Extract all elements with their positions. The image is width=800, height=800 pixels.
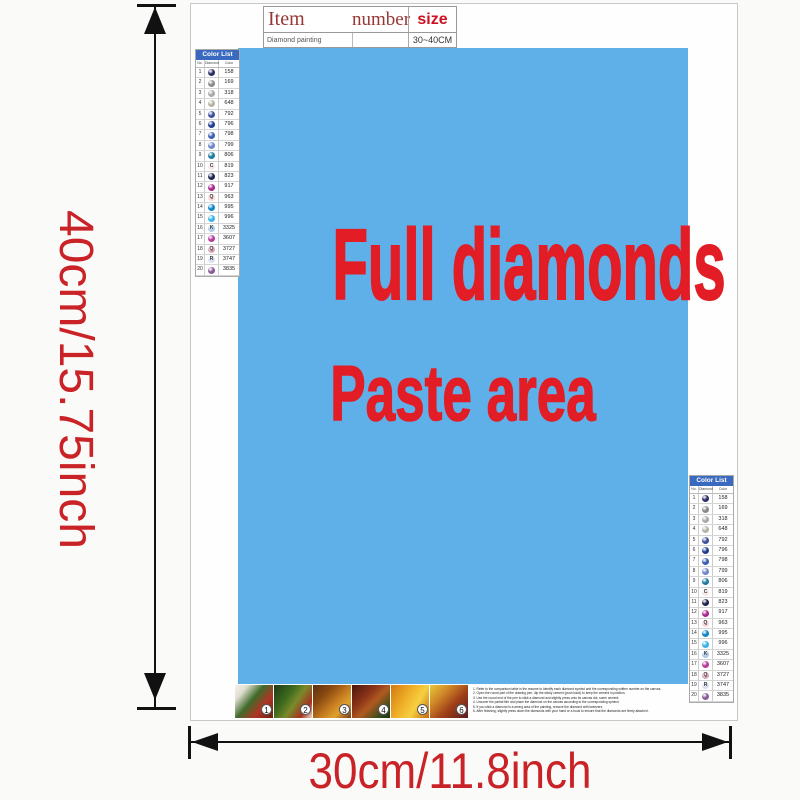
color-list-row: 19 R 3747 — [690, 681, 733, 691]
arrow-down-icon — [144, 673, 166, 700]
diamond-symbol-icon — [702, 568, 709, 575]
diamond-symbol-icon — [208, 132, 215, 139]
color-row-number: 6 — [690, 546, 699, 555]
color-list-row: 17 3607 — [690, 660, 733, 670]
color-list-row: 10 C 819 — [196, 162, 239, 172]
diamond-symbol-icon — [208, 204, 215, 211]
color-code: 823 — [713, 598, 733, 607]
color-code: 648 — [219, 99, 239, 108]
step-thumbnail: 3 — [313, 685, 351, 718]
spec-value-number — [352, 33, 408, 47]
color-list-row: 11 823 — [196, 172, 239, 182]
color-row-number: 19 — [196, 255, 205, 264]
diamond-symbol-cell: Q — [205, 193, 219, 202]
diamond-symbol-icon — [702, 599, 709, 606]
spec-header-item: Item — [264, 8, 352, 31]
step-number-badge: 1 — [261, 704, 272, 715]
color-row-number: 13 — [196, 193, 205, 202]
color-row-number: 5 — [196, 110, 205, 119]
diamond-symbol-cell: R — [205, 255, 219, 264]
color-code: 917 — [219, 182, 239, 191]
color-code: 819 — [713, 588, 733, 597]
diamond-symbol-icon: C — [702, 589, 709, 596]
diamond-symbol-icon — [702, 547, 709, 554]
diamond-symbol-cell — [699, 691, 713, 700]
spec-table: Item number size Diamond painting 30~40C… — [263, 6, 457, 48]
color-list-rows: 1 158 2 169 — [690, 494, 733, 702]
diamond-symbol-cell — [699, 525, 713, 534]
color-list-row: 18 Q 3727 — [690, 671, 733, 681]
diamond-symbol-icon: K — [208, 225, 215, 232]
color-code: 3607 — [219, 234, 239, 243]
color-list-row: 3 318 — [690, 515, 733, 525]
diamond-symbol-cell — [699, 639, 713, 648]
color-row-number: 13 — [690, 619, 699, 628]
color-code: 169 — [219, 78, 239, 87]
color-list-row: 6 796 — [690, 546, 733, 556]
step-number-badge: 5 — [417, 704, 428, 715]
diamond-symbol-cell — [205, 151, 219, 160]
spec-table-row: Diamond painting 30~40CM — [264, 33, 456, 47]
color-code: 796 — [713, 546, 733, 555]
col-no: No. — [196, 60, 205, 67]
color-row-number: 7 — [196, 130, 205, 139]
diamond-symbol-icon — [208, 142, 215, 149]
color-row-number: 7 — [690, 556, 699, 565]
diamond-symbol-cell — [699, 567, 713, 576]
color-list-row: 4 648 — [690, 525, 733, 535]
color-row-number: 16 — [690, 650, 699, 659]
spec-header-number: number — [352, 9, 408, 31]
color-list-row: 20 3835 — [690, 691, 733, 701]
col-color: Color — [713, 486, 733, 493]
diamond-symbol-icon — [702, 558, 709, 565]
color-code: 3325 — [219, 224, 239, 233]
diamond-symbol-cell — [205, 213, 219, 222]
diamond-symbol-icon — [208, 69, 215, 76]
diamond-symbol-icon — [208, 215, 215, 222]
diamond-symbol-icon — [208, 184, 215, 191]
color-row-number: 1 — [690, 494, 699, 503]
diamond-symbol-icon — [208, 152, 215, 159]
diamond-symbol-cell: Q — [699, 619, 713, 628]
color-list-row: 12 917 — [196, 182, 239, 192]
color-list-row: 2 169 — [690, 504, 733, 514]
diamond-symbol-cell: C — [205, 162, 219, 171]
diamond-symbol-icon — [702, 526, 709, 533]
color-row-number: 8 — [196, 141, 205, 150]
color-row-number: 17 — [196, 234, 205, 243]
color-list-row: 15 996 — [196, 213, 239, 223]
height-arrow-bottom-cap — [137, 707, 176, 710]
color-row-number: 5 — [690, 536, 699, 545]
color-code: 648 — [713, 525, 733, 534]
paste-area-title-line2: Paste area — [310, 348, 616, 439]
step-thumbnail: 1 — [235, 685, 273, 718]
diamond-symbol-cell — [699, 660, 713, 669]
color-list-row: 5 792 — [690, 536, 733, 546]
diamond-symbol-icon — [702, 661, 709, 668]
color-row-number: 17 — [690, 660, 699, 669]
color-list-row: 16 K 3325 — [690, 650, 733, 660]
color-list-row: 11 823 — [690, 598, 733, 608]
spec-table-header: Item number size — [264, 7, 456, 33]
color-row-number: 3 — [196, 89, 205, 98]
color-list-row: 1 158 — [690, 494, 733, 504]
diamond-symbol-cell: R — [699, 681, 713, 690]
color-code: 996 — [713, 639, 733, 648]
color-list-row: 20 3835 — [196, 265, 239, 275]
color-code: 796 — [219, 120, 239, 129]
color-row-number: 4 — [690, 525, 699, 534]
diamond-symbol-icon: Q — [702, 672, 709, 679]
col-diamond: Diamond — [699, 486, 713, 493]
color-list-row: 7 798 — [196, 130, 239, 140]
spec-header-size: size — [408, 7, 456, 32]
color-list-row: 2 169 — [196, 78, 239, 88]
diamond-symbol-icon: K — [702, 651, 709, 658]
diamond-symbol-cell — [205, 89, 219, 98]
diamond-symbol-icon — [208, 267, 215, 274]
color-list-row: 13 Q 963 — [690, 619, 733, 629]
step-number-badge: 3 — [339, 704, 350, 715]
color-list-row: 12 917 — [690, 608, 733, 618]
color-list-right: Color List No. Diamond Color 1 158 — [689, 475, 734, 703]
diamond-symbol-icon — [702, 516, 709, 523]
width-dimension-label: 30cm/11.8inch — [296, 746, 604, 796]
step-number-badge: 2 — [300, 704, 311, 715]
color-code: 3607 — [713, 660, 733, 669]
col-no: No. — [690, 486, 699, 493]
color-row-number: 9 — [196, 151, 205, 160]
color-list-row: 16 K 3325 — [196, 224, 239, 234]
color-list-row: 18 Q 3727 — [196, 245, 239, 255]
diamond-symbol-icon — [208, 173, 215, 180]
diamond-symbol-cell — [205, 141, 219, 150]
diamond-symbol-icon — [702, 495, 709, 502]
color-row-number: 2 — [196, 78, 205, 87]
diamond-symbol-icon — [702, 693, 709, 700]
diamond-symbol-cell — [205, 265, 219, 274]
color-code: 3727 — [219, 245, 239, 254]
color-list-row: 9 806 — [690, 577, 733, 587]
color-row-number: 3 — [690, 515, 699, 524]
poster-sheet: Item number size Diamond painting 30~40C… — [190, 3, 738, 721]
diamond-symbol-cell — [205, 68, 219, 77]
diamond-symbol-cell — [205, 203, 219, 212]
diamond-symbol-cell — [205, 78, 219, 87]
color-list-rows: 1 158 2 169 — [196, 68, 239, 276]
diamond-symbol-cell — [205, 234, 219, 243]
diamond-symbol-icon: C — [208, 163, 215, 170]
diamond-symbol-icon — [208, 121, 215, 128]
color-code: 3747 — [713, 681, 733, 690]
color-list-row: 3 318 — [196, 89, 239, 99]
col-diamond: Diamond — [205, 60, 219, 67]
step-number-badge: 6 — [456, 704, 467, 715]
height-arrow-line — [154, 6, 156, 708]
color-list-title: Color List — [196, 50, 239, 60]
color-code: 318 — [219, 89, 239, 98]
diamond-symbol-cell: Q — [699, 671, 713, 680]
diamond-symbol-cell — [699, 598, 713, 607]
color-code: 799 — [219, 141, 239, 150]
color-list-row: 8 799 — [690, 567, 733, 577]
color-code: 819 — [219, 162, 239, 171]
color-row-number: 9 — [690, 577, 699, 586]
diamond-symbol-icon: Q — [208, 194, 215, 201]
diamond-symbol-cell — [699, 504, 713, 513]
color-row-number: 20 — [196, 265, 205, 274]
color-list-title: Color List — [690, 476, 733, 486]
diamond-symbol-cell — [205, 172, 219, 181]
color-list-row: 6 796 — [196, 120, 239, 130]
diamond-symbol-cell — [699, 556, 713, 565]
step-thumbnail: 6 — [430, 685, 468, 718]
diamond-symbol-icon — [702, 641, 709, 648]
diamond-symbol-icon — [702, 537, 709, 544]
steps-strip: 1 2 3 4 5 6 — [235, 685, 468, 718]
diamond-symbol-cell — [205, 99, 219, 108]
paste-area-title-line1: Full diamonds — [333, 208, 594, 323]
diamond-symbol-cell — [205, 110, 219, 119]
color-code: 318 — [713, 515, 733, 524]
instructions-block: 1. Refer to the comparison table in the … — [473, 687, 695, 713]
color-code: 806 — [219, 151, 239, 160]
color-code: 798 — [219, 130, 239, 139]
color-row-number: 10 — [690, 588, 699, 597]
diamond-symbol-cell — [205, 120, 219, 129]
color-row-number: 4 — [196, 99, 205, 108]
diamond-symbol-icon — [208, 80, 215, 87]
spec-value-size: 30~40CM — [408, 33, 456, 47]
diamond-symbol-icon — [702, 630, 709, 637]
instruction-line: 6. After finishing, slightly press down … — [473, 709, 695, 713]
color-list-row: 13 Q 963 — [196, 193, 239, 203]
diamond-symbol-cell — [699, 608, 713, 617]
diamond-symbol-cell: K — [205, 224, 219, 233]
color-list-row: 9 806 — [196, 151, 239, 161]
diamond-symbol-cell — [205, 130, 219, 139]
color-list-row: 7 798 — [690, 556, 733, 566]
color-list-row: 8 799 — [196, 141, 239, 151]
diamond-symbol-icon — [702, 506, 709, 513]
diamond-symbol-cell — [205, 182, 219, 191]
color-code: 963 — [713, 619, 733, 628]
diamond-symbol-icon — [702, 578, 709, 585]
diamond-symbol-icon — [208, 235, 215, 242]
color-code: 823 — [219, 172, 239, 181]
color-code: 158 — [219, 68, 239, 77]
color-row-number: 2 — [690, 504, 699, 513]
spec-value-item: Diamond painting — [264, 33, 352, 47]
color-row-number: 16 — [196, 224, 205, 233]
color-list-row: 1 158 — [196, 68, 239, 78]
product-infographic: Item number size Diamond painting 30~40C… — [0, 0, 800, 800]
color-code: 158 — [713, 494, 733, 503]
diamond-symbol-cell: C — [699, 588, 713, 597]
color-code: 3727 — [713, 671, 733, 680]
color-code: 806 — [713, 577, 733, 586]
color-row-number: 18 — [196, 245, 205, 254]
color-code: 169 — [713, 504, 733, 513]
color-row-number: 14 — [196, 203, 205, 212]
diamond-symbol-icon: R — [208, 256, 215, 263]
color-list-row: 5 792 — [196, 110, 239, 120]
diamond-symbol-cell — [699, 536, 713, 545]
color-code: 995 — [713, 629, 733, 638]
color-row-number: 18 — [690, 671, 699, 680]
diamond-symbol-icon: Q — [702, 620, 709, 627]
color-list-row: 15 996 — [690, 639, 733, 649]
diamond-symbol-icon — [208, 90, 215, 97]
diamond-symbol-icon: R — [702, 682, 709, 689]
diamond-symbol-icon — [208, 100, 215, 107]
color-row-number: 10 — [196, 162, 205, 171]
diamond-symbol-icon: Q — [208, 246, 215, 253]
arrow-up-icon — [144, 7, 166, 34]
color-code: 798 — [713, 556, 733, 565]
color-code: 996 — [219, 213, 239, 222]
color-code: 917 — [713, 608, 733, 617]
color-code: 792 — [219, 110, 239, 119]
color-row-number: 8 — [690, 567, 699, 576]
step-thumbnail: 5 — [391, 685, 429, 718]
diamond-symbol-cell: Q — [205, 245, 219, 254]
col-color: Color — [219, 60, 239, 67]
height-dimension-label: 40cm/15.75inch — [50, 210, 100, 558]
color-code: 799 — [713, 567, 733, 576]
color-list-left: Color List No. Diamond Color 1 158 — [195, 49, 240, 277]
color-code: 3747 — [219, 255, 239, 264]
color-list-column-headers: No. Diamond Color — [196, 60, 239, 68]
color-code: 3835 — [713, 691, 733, 700]
color-code: 963 — [219, 193, 239, 202]
color-code: 995 — [219, 203, 239, 212]
color-row-number: 15 — [196, 213, 205, 222]
color-row-number: 6 — [196, 120, 205, 129]
diamond-symbol-cell — [699, 515, 713, 524]
width-arrow-right-cap — [729, 726, 732, 759]
color-list-row: 14 995 — [196, 203, 239, 213]
color-list-row: 17 3607 — [196, 234, 239, 244]
color-row-number: 15 — [690, 639, 699, 648]
color-row-number: 14 — [690, 629, 699, 638]
color-list-column-headers: No. Diamond Color — [690, 486, 733, 494]
color-code: 3835 — [219, 265, 239, 274]
arrow-left-icon — [192, 733, 218, 751]
step-thumbnail: 2 — [274, 685, 312, 718]
diamond-symbol-icon — [702, 610, 709, 617]
color-row-number: 12 — [690, 608, 699, 617]
color-code: 792 — [713, 536, 733, 545]
color-list-row: 4 648 — [196, 99, 239, 109]
color-list-row: 19 R 3747 — [196, 255, 239, 265]
step-number-badge: 4 — [378, 704, 389, 715]
diamond-symbol-cell — [699, 577, 713, 586]
paste-area: Full diamonds Paste area — [238, 48, 688, 684]
color-list-row: 10 C 819 — [690, 588, 733, 598]
color-list-row: 14 995 — [690, 629, 733, 639]
diamond-symbol-icon — [208, 111, 215, 118]
color-row-number: 12 — [196, 182, 205, 191]
color-row-number: 11 — [196, 172, 205, 181]
diamond-symbol-cell — [699, 546, 713, 555]
color-row-number: 11 — [690, 598, 699, 607]
color-row-number: 1 — [196, 68, 205, 77]
diamond-symbol-cell: K — [699, 650, 713, 659]
step-thumbnail: 4 — [352, 685, 390, 718]
diamond-symbol-cell — [699, 494, 713, 503]
diamond-symbol-cell — [699, 629, 713, 638]
color-code: 3325 — [713, 650, 733, 659]
arrow-right-icon — [702, 733, 728, 751]
